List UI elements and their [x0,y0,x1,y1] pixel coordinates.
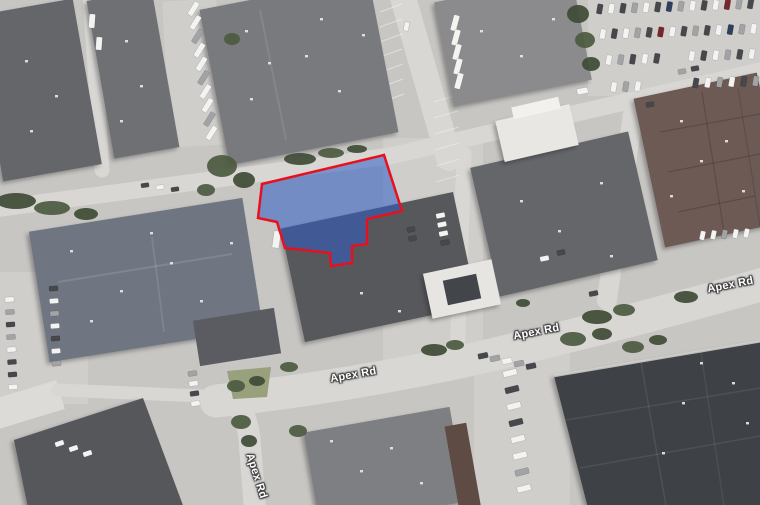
map-viewport[interactable]: Apex Rd Apex Rd Apex Rd Apex Rd [0,0,760,505]
satellite-map-canvas[interactable] [0,0,760,505]
